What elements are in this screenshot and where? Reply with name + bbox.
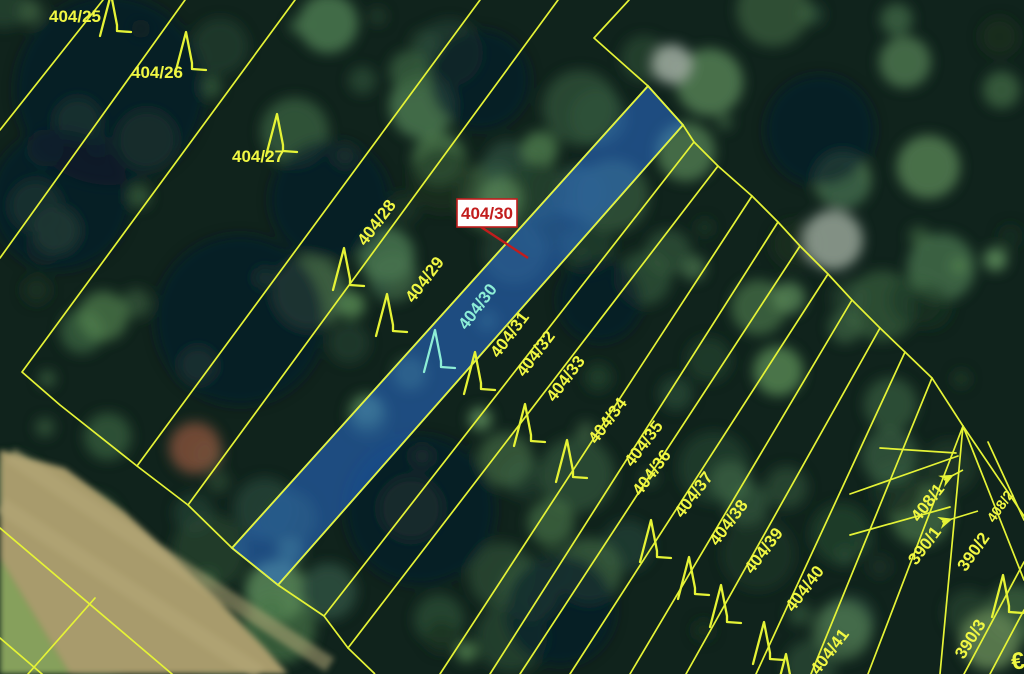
parcel-label--: € bbox=[1009, 647, 1024, 674]
tree-canopy-blob bbox=[207, 470, 230, 493]
parcel-label-404-25: 404/25 bbox=[49, 7, 101, 26]
tree-canopy-blob bbox=[984, 248, 1008, 272]
cadastral-map-stage: 404/25404/26404/27404/28404/29404/30404/… bbox=[0, 0, 1024, 674]
forest-shadow-patch bbox=[765, 75, 875, 185]
callout-parcel-number: 404/30 bbox=[461, 204, 513, 223]
tree-canopy-blob bbox=[950, 257, 967, 274]
tree-canopy-blob bbox=[773, 282, 805, 314]
tree-canopy-blob bbox=[998, 224, 1023, 249]
tree-canopy-blob bbox=[753, 346, 803, 396]
tree-canopy-blob bbox=[828, 310, 861, 343]
tree-canopy-blob bbox=[369, 8, 386, 25]
tree-canopy-blob bbox=[868, 555, 891, 578]
tree-canopy-blob bbox=[389, 50, 430, 91]
parcel-label-404-26: 404/26 bbox=[131, 63, 183, 82]
tree-canopy-blob bbox=[765, 466, 808, 509]
tree-canopy-blob bbox=[35, 417, 55, 437]
distinct-tree-blob bbox=[803, 210, 863, 270]
tree-canopy-blob bbox=[78, 291, 128, 341]
distinct-tree-blob bbox=[879, 36, 931, 88]
forest-shadow-patch bbox=[155, 235, 325, 405]
tree-canopy-blob bbox=[696, 218, 714, 236]
parcel-label-404-27: 404/27 bbox=[232, 147, 284, 166]
tree-canopy-blob bbox=[897, 135, 961, 199]
tree-canopy-blob bbox=[584, 363, 612, 391]
forest-shadow-patch bbox=[505, 555, 615, 665]
tree-canopy-blob bbox=[980, 17, 1020, 57]
tree-canopy-blob bbox=[983, 71, 1020, 108]
tree-canopy-blob bbox=[908, 285, 952, 329]
tree-canopy-blob bbox=[128, 185, 151, 208]
distinct-tree-blob bbox=[652, 44, 692, 84]
tree-canopy-blob bbox=[328, 322, 369, 363]
map-canvas[interactable]: 404/25404/26404/27404/28404/29404/30404/… bbox=[0, 0, 1024, 674]
tree-canopy-blob bbox=[880, 3, 912, 35]
tree-canopy-blob bbox=[84, 413, 131, 460]
tree-canopy-blob bbox=[425, 619, 459, 653]
tree-canopy-blob bbox=[348, 66, 376, 94]
tree-canopy-blob bbox=[528, 499, 575, 546]
tree-canopy-blob bbox=[22, 276, 50, 304]
tree-canopy-blob bbox=[811, 503, 872, 564]
tree-canopy-blob bbox=[862, 428, 918, 484]
tree-canopy-blob bbox=[39, 370, 56, 387]
distinct-tree-blob bbox=[169, 422, 221, 474]
tree-canopy-blob bbox=[953, 370, 970, 387]
tree-canopy-blob bbox=[716, 114, 733, 131]
forest-shadow-patch bbox=[430, 30, 530, 130]
